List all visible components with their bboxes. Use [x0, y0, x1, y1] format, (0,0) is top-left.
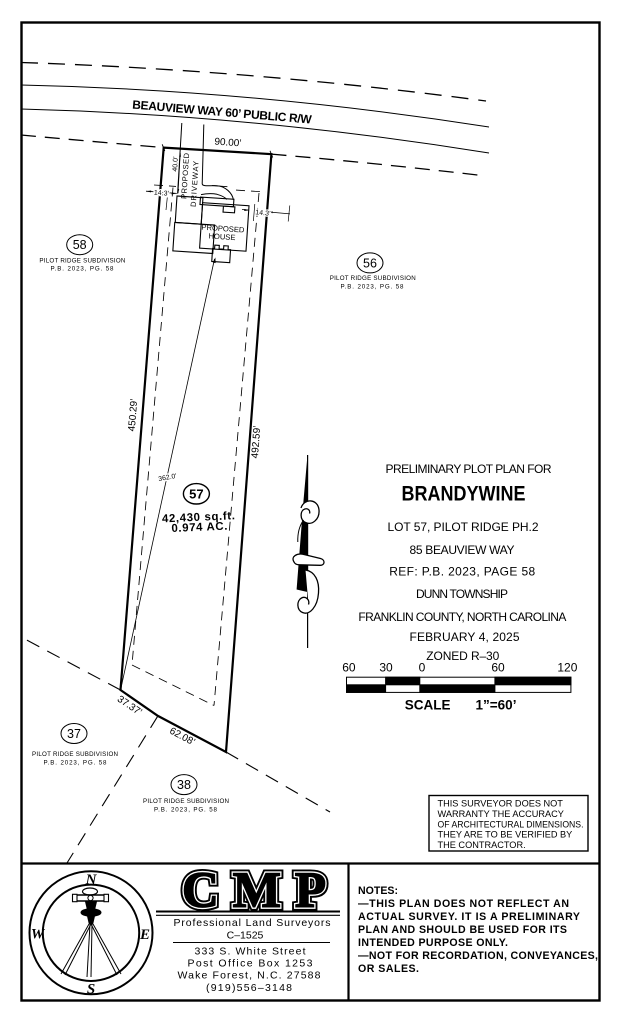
svg-text:FRANKLIN COUNTY, NORTH CAROLIN: FRANKLIN COUNTY, NORTH CAROLINA: [358, 610, 566, 624]
svg-text:Post Office Box 1253: Post Office Box 1253: [188, 958, 313, 970]
svg-text:37: 37: [67, 727, 81, 741]
svg-text:58: 58: [73, 238, 87, 252]
svg-text:38: 38: [177, 778, 191, 792]
svg-text:P.B. 2023, PG. 58: P.B. 2023, PG. 58: [51, 266, 115, 273]
svg-text:PRELIMINARY PLOT PLAN FOR: PRELIMINARY PLOT PLAN FOR: [386, 462, 552, 476]
svg-text:PLAN AND SHOULD BE USED FOR IT: PLAN AND SHOULD BE USED FOR ITS: [358, 924, 567, 936]
svg-text:60: 60: [342, 661, 356, 675]
svg-text:SCALE: SCALE: [405, 697, 451, 712]
svg-text:1”=60’: 1”=60’: [476, 697, 517, 712]
svg-text:ZONED R–30: ZONED R–30: [426, 649, 499, 663]
svg-text:30: 30: [379, 661, 393, 675]
svg-text:OR SALES.: OR SALES.: [358, 963, 419, 975]
svg-text:333 S. White Street: 333 S. White Street: [195, 946, 306, 958]
svg-text:0.974 AC.: 0.974 AC.: [171, 521, 227, 535]
svg-text:—THIS PLAN DOES NOT REFLECT AN: —THIS PLAN DOES NOT REFLECT AN: [358, 898, 569, 910]
svg-text:56: 56: [363, 256, 377, 270]
svg-text:OF ARCHITECTURAL DIMENSIONS.: OF ARCHITECTURAL DIMENSIONS.: [438, 819, 584, 829]
svg-text:PILOT RIDGE SUBDIVISION: PILOT RIDGE SUBDIVISION: [39, 258, 125, 265]
svg-text:N: N: [85, 872, 98, 888]
svg-text:HOUSE: HOUSE: [208, 231, 236, 242]
svg-text:14.3’: 14.3’: [154, 190, 170, 198]
svg-text:THIS SURVEYOR DOES NOT: THIS SURVEYOR DOES NOT: [438, 799, 564, 809]
svg-text:Wake Forest, N.C. 27588: Wake Forest, N.C. 27588: [178, 970, 321, 982]
svg-text:DUNN TOWNSHIP: DUNN TOWNSHIP: [416, 587, 508, 601]
svg-text:E: E: [139, 927, 150, 943]
svg-text:INTENDED PURPOSE ONLY.: INTENDED PURPOSE ONLY.: [358, 937, 508, 949]
svg-text:THEY ARE TO BE VERIFIED BY: THEY ARE TO BE VERIFIED BY: [438, 830, 573, 840]
svg-text:BRANDYWINE: BRANDYWINE: [402, 482, 526, 505]
svg-text:PILOT RIDGE SUBDIVISION: PILOT RIDGE SUBDIVISION: [143, 798, 229, 805]
svg-text:Professional Land Surveyors: Professional Land Surveyors: [174, 917, 331, 929]
svg-text:40.0’: 40.0’: [172, 156, 180, 172]
svg-text:W: W: [31, 926, 46, 942]
svg-text:NOTES:: NOTES:: [358, 885, 398, 897]
svg-text:WARRANTY THE ACCURACY: WARRANTY THE ACCURACY: [438, 809, 564, 819]
svg-text:P.B. 2023, PG. 58: P.B. 2023, PG. 58: [154, 807, 218, 814]
svg-text:P.B. 2023, PG. 58: P.B. 2023, PG. 58: [341, 283, 405, 290]
svg-text:ACTUAL SURVEY. IT IS A PRELIMI: ACTUAL SURVEY. IT IS A PRELIMINARY: [358, 911, 580, 923]
svg-text:60: 60: [491, 661, 505, 675]
svg-text:THE CONTRACTOR.: THE CONTRACTOR.: [438, 840, 526, 850]
svg-text:90.00’: 90.00’: [214, 137, 242, 150]
svg-text:—NOT FOR RECORDATION, CONVEYAN: —NOT FOR RECORDATION, CONVEYANCES,: [358, 950, 598, 962]
svg-text:120: 120: [557, 661, 577, 675]
svg-text:P.B. 2023, PG. 58: P.B. 2023, PG. 58: [44, 760, 108, 767]
svg-text:LOT 57, PILOT RIDGE PH.2: LOT 57, PILOT RIDGE PH.2: [388, 520, 539, 534]
svg-text:(919)556–3148: (919)556–3148: [206, 982, 292, 994]
svg-text:57: 57: [189, 486, 203, 501]
svg-text:S: S: [87, 982, 95, 998]
svg-text:FEBRUARY 4, 2025: FEBRUARY 4, 2025: [410, 630, 520, 644]
svg-text:PILOT RIDGE SUBDIVISION: PILOT RIDGE SUBDIVISION: [330, 275, 416, 282]
svg-text:0: 0: [419, 661, 426, 675]
svg-text:PILOT RIDGE SUBDIVISION: PILOT RIDGE SUBDIVISION: [32, 751, 118, 758]
svg-text:REF: P.B. 2023, PAGE 58: REF: P.B. 2023, PAGE 58: [389, 565, 535, 579]
svg-text:C–1525: C–1525: [227, 930, 264, 942]
svg-text:85 BEAUVIEW WAY: 85 BEAUVIEW WAY: [410, 543, 515, 557]
